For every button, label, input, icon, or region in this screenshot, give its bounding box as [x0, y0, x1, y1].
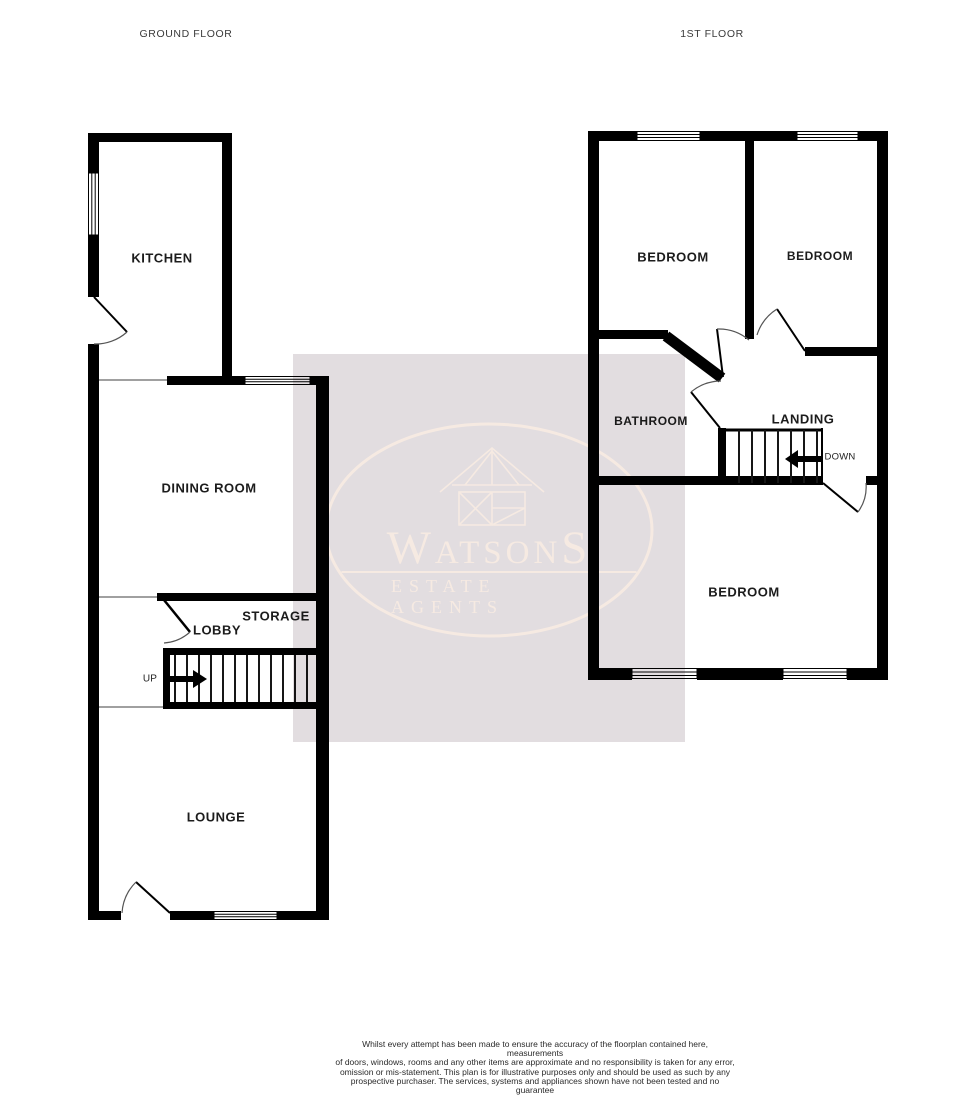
ground-floor-title: GROUND FLOOR: [140, 28, 233, 40]
stairs-down-label: DOWN: [825, 452, 856, 463]
room-label-landing: LANDING: [772, 412, 835, 427]
disclaimer-line: prospective purchaser. The services, sys…: [335, 1077, 735, 1095]
bedroom3-door: [823, 483, 866, 512]
room-label-lobby: LOBBY: [193, 623, 241, 638]
ground-floor-doors: [94, 297, 190, 913]
room-label-bedroom-3: BEDROOM: [708, 585, 779, 600]
floorplan-page: GROUND FLOOR 1ST FLOOR KITCHEN DINING RO…: [0, 0, 980, 1096]
room-label-kitchen: KITCHEN: [131, 251, 192, 266]
room-label-dining-room: DINING ROOM: [161, 481, 256, 496]
window-bedroom2-top: [797, 132, 858, 141]
first-floor-title: 1ST FLOOR: [680, 28, 744, 40]
room-label-bedroom-2: BEDROOM: [787, 249, 853, 263]
disclaimer: Whilst every attempt has been made to en…: [335, 1040, 735, 1096]
bedroom1-door: [717, 329, 749, 377]
watermark-divider: [342, 571, 637, 573]
kitchen-door: [94, 297, 127, 344]
lobby-door: [164, 600, 190, 643]
room-label-lounge: LOUNGE: [187, 810, 246, 825]
bedroom2-door: [757, 309, 805, 351]
house-logo-icon: [440, 448, 544, 525]
ground-floor-windows: [89, 173, 311, 920]
ground-floor-dividers: [99, 380, 167, 707]
window-bedroom3-right: [783, 669, 847, 679]
window-bedroom1-top: [637, 132, 700, 141]
agency-watermark: WatsonS ESTATE AGENTS: [293, 354, 685, 742]
room-label-bedroom-1: BEDROOM: [637, 250, 708, 265]
watermark-brand-text: WatsonS: [387, 526, 592, 570]
disclaimer-line: Whilst every attempt has been made to en…: [335, 1040, 735, 1058]
watermark-tagline: ESTATE AGENTS: [391, 576, 587, 618]
lounge-entrance-door: [122, 882, 170, 913]
stairs-up-label: UP: [143, 674, 157, 685]
window-kitchen-left: [89, 173, 99, 235]
window-lounge-bottom: [214, 912, 277, 920]
bathroom-door: [691, 381, 721, 428]
